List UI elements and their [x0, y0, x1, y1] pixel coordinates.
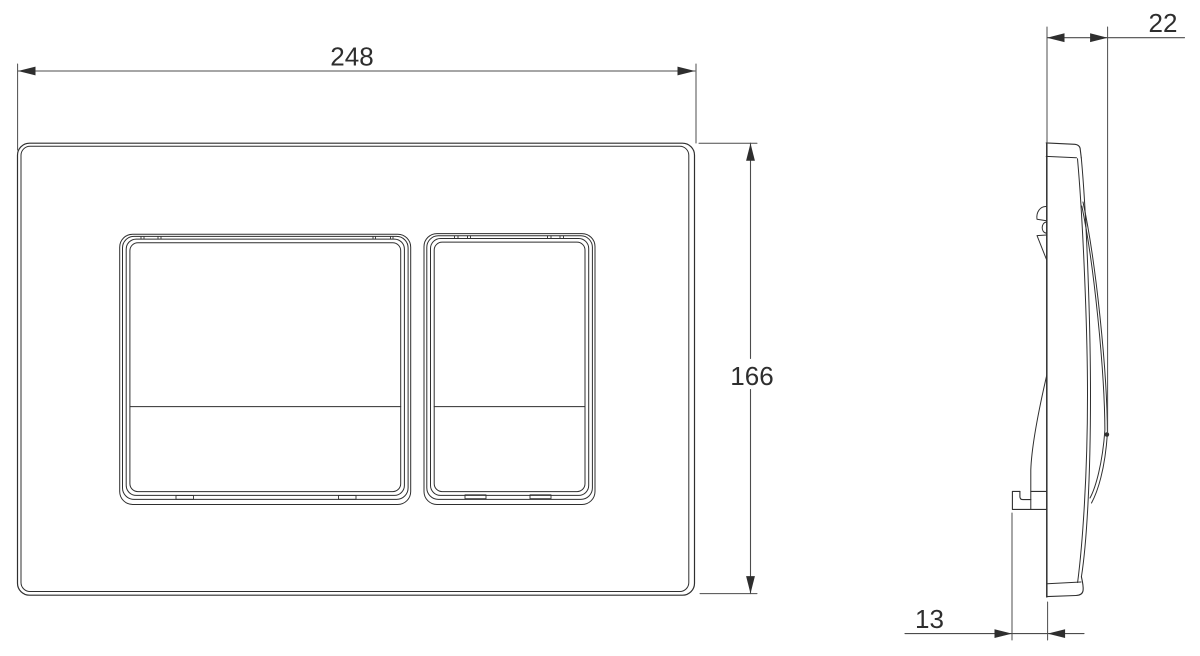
svg-text:166: 166	[730, 361, 773, 391]
svg-text:22: 22	[1149, 8, 1178, 38]
svg-text:13: 13	[915, 604, 944, 634]
svg-text:248: 248	[330, 42, 373, 72]
